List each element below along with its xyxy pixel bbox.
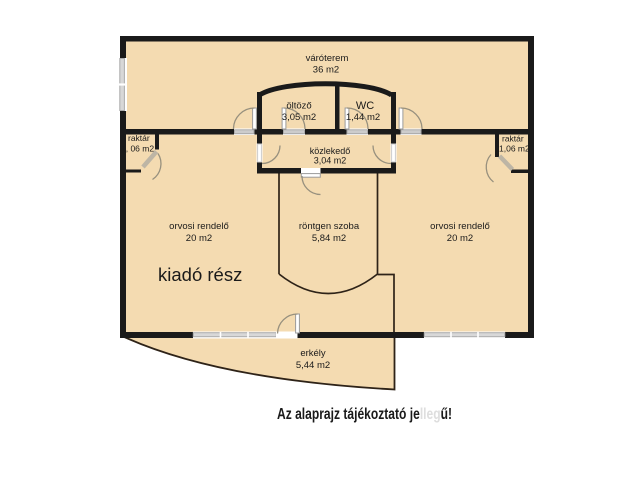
svg-text:orvosi rendelő: orvosi rendelő bbox=[430, 221, 490, 232]
svg-text:raktár: raktár bbox=[128, 133, 150, 143]
svg-text:WC: WC bbox=[356, 100, 374, 112]
svg-text:20 m2: 20 m2 bbox=[186, 233, 212, 244]
svg-text:3,05 m2: 3,05 m2 bbox=[282, 112, 316, 123]
svg-text:raktár: raktár bbox=[502, 134, 524, 144]
svg-text:1, 06 m2: 1, 06 m2 bbox=[121, 144, 154, 154]
svg-text:3,04 m2: 3,04 m2 bbox=[314, 156, 347, 166]
svg-text:1,44 m2: 1,44 m2 bbox=[346, 112, 380, 123]
svg-text:36 m2: 36 m2 bbox=[313, 65, 339, 76]
svg-text:öltöző: öltöző bbox=[286, 101, 311, 112]
svg-text:1,06 m2: 1,06 m2 bbox=[499, 144, 530, 154]
svg-text:kiadó rész: kiadó rész bbox=[158, 264, 242, 285]
svg-text:váróterem: váróterem bbox=[306, 53, 349, 64]
svg-text:20 m2: 20 m2 bbox=[447, 233, 473, 244]
svg-text:röntgen szoba: röntgen szoba bbox=[299, 221, 360, 232]
svg-text:5,44 m2: 5,44 m2 bbox=[296, 360, 330, 371]
svg-text:orvosi rendelő: orvosi rendelő bbox=[169, 221, 229, 232]
svg-text:közlekedő: közlekedő bbox=[310, 146, 351, 156]
svg-text:erkély: erkély bbox=[300, 348, 326, 359]
svg-text:5,84 m2: 5,84 m2 bbox=[312, 233, 346, 244]
svg-text:Az alaprajz tájékoztató jelleg: Az alaprajz tájékoztató jellegű! bbox=[277, 406, 452, 423]
